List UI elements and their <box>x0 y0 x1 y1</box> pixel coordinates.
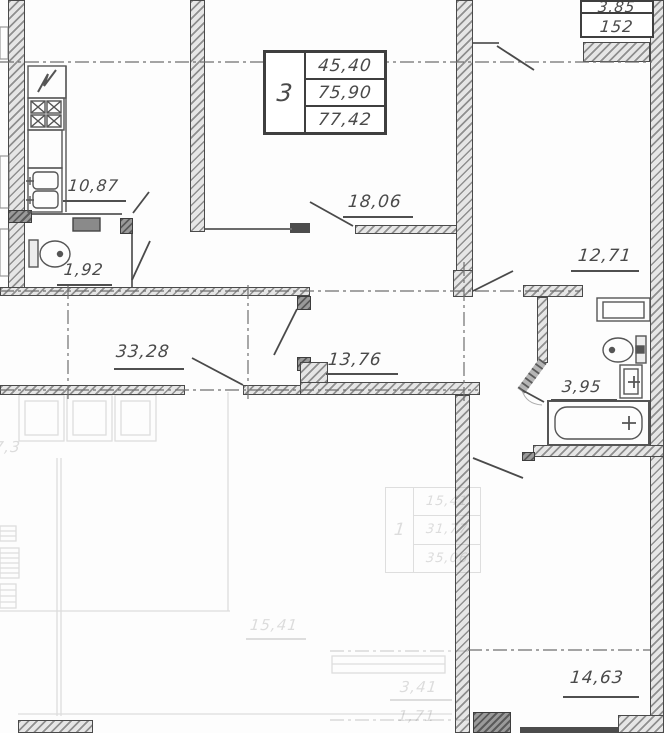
living-area-value: 45,40 <box>317 56 373 76</box>
room3-area-label: 14,63 <box>569 668 625 688</box>
room2-area-underline <box>571 270 639 272</box>
total-area-value: 77,42 <box>317 110 373 130</box>
bathtub-icon <box>548 401 649 445</box>
balcony-area-reduced: 152 <box>599 17 635 36</box>
bathroom-area-label: 3,95 <box>561 377 603 396</box>
bath-door-icon <box>522 390 544 402</box>
faded-room-underline <box>246 638 306 640</box>
kitchen-area-underline <box>63 200 126 202</box>
corridor-area-label: 13,76 <box>327 350 383 370</box>
toilet2-icon <box>603 336 646 363</box>
room3-area-underline <box>563 696 639 698</box>
room3-door-icon <box>473 458 523 478</box>
faded-rooms-count: 1 <box>393 520 407 540</box>
faded-hall-underline <box>390 699 452 701</box>
washbasin-icon <box>620 365 642 398</box>
faded-wc-area-label: 1,71 <box>397 707 436 725</box>
hall-room-door-icon <box>192 358 243 385</box>
faded-room-area-label: 15,41 <box>249 616 299 634</box>
kitchen-sink-icon <box>26 168 62 212</box>
apartment-area-value: 75,90 <box>317 83 373 103</box>
apartment-info-box: 3 45,40 75,90 77,42 <box>263 50 387 135</box>
wall-bath-angled <box>521 361 543 391</box>
edge-fragments <box>0 27 9 276</box>
stove-icon <box>28 98 64 130</box>
hall-area-label: 33,28 <box>115 342 171 362</box>
faded-row3: 35,06 <box>425 551 469 566</box>
wc-door-icon <box>132 241 150 280</box>
counter-icon <box>28 130 62 168</box>
faded-row1: 15,41 <box>425 494 469 509</box>
kitchen-fixtures <box>26 66 66 212</box>
faded-hall-area-label: 3,41 <box>399 678 438 696</box>
floor-plan: 3 45,40 75,90 77,42 3,85 152 10,87 1,92 … <box>0 0 664 733</box>
room2-area-label: 12,71 <box>577 246 633 266</box>
wc-area-label: 1,92 <box>63 260 105 279</box>
bathroom-fixtures <box>548 298 650 445</box>
axis-lines <box>0 62 652 720</box>
balcony-info-box: 3,85 152 <box>580 0 654 38</box>
wc-area-underline <box>57 284 112 286</box>
apartment-rooms-count: 3 <box>275 79 294 107</box>
washing-machine-icon <box>597 298 650 321</box>
boiler-icon <box>73 218 100 231</box>
faded-row2: 31,77 <box>425 522 469 537</box>
kitchen-door-icon <box>133 192 149 213</box>
faded-left-cut-label: 7,3 <box>0 438 22 456</box>
faded-window-icon <box>332 656 445 673</box>
kitchen-area-label: 10,87 <box>67 176 120 195</box>
wardrobe-icon <box>19 395 156 441</box>
faded-info-box: 1 15,41 31,77 35,06 <box>385 487 481 573</box>
room2-door-icon <box>473 271 513 291</box>
bathroom-area-underline <box>551 399 617 401</box>
zigzag-icon <box>38 70 56 92</box>
room1-area-underline <box>343 216 413 218</box>
radiator-icon <box>0 526 19 608</box>
corridor-area-underline <box>326 373 398 375</box>
balcony-door-icon <box>497 46 534 70</box>
hall-door-icon <box>274 309 297 355</box>
room1-area-label: 18,06 <box>347 192 403 212</box>
balcony-area-full: 3,85 <box>597 2 636 14</box>
hall-area-underline <box>114 368 184 370</box>
